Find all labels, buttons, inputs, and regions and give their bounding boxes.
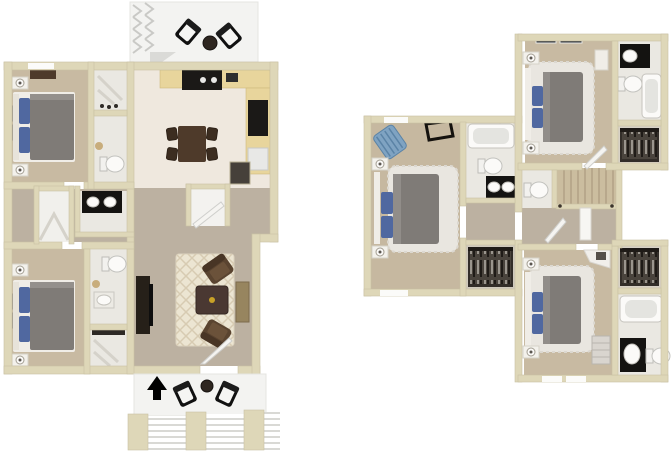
dining-chair [206,147,218,160]
floorplan-second-floor[interactable] [364,34,670,382]
dining-chair [166,127,178,140]
toilet [618,76,642,92]
door-panel [580,208,591,240]
pillow [532,86,543,106]
bed [13,280,75,352]
floorplan-image [0,0,672,454]
toilet [102,256,126,272]
basket [92,280,100,288]
window [380,290,408,296]
nightstand [12,164,28,176]
headboard [13,282,19,350]
nightstand [523,52,539,64]
small-appliance [226,73,238,82]
hall-bathroom [80,191,127,232]
toilet [478,158,502,174]
staircase [556,168,618,209]
headboard [374,172,380,244]
basket [95,142,103,150]
sink [97,295,111,305]
patio-top [130,2,258,62]
closet-3 [620,248,659,286]
nightstand [523,142,539,154]
laundry-closet [191,189,225,228]
master-hall-floor [466,203,515,240]
nightstand [523,258,539,270]
dining-chair [206,127,218,140]
desk-tray [596,252,606,260]
comforter [30,94,74,160]
nightstand [523,346,539,358]
pillow [381,216,393,238]
patio-table [203,36,217,50]
pillow [19,98,30,124]
sink [104,197,116,207]
master-closet [468,247,513,287]
nightstand [12,264,28,276]
tv [149,284,153,326]
window [566,376,586,382]
comforter [30,282,74,350]
dresser [30,70,56,79]
pillow [19,287,30,313]
pillow [19,316,30,342]
dresser [595,50,608,70]
front-steps [128,410,280,450]
utility-nook [230,162,250,184]
pillow [532,314,543,334]
tray [209,297,215,303]
sink [624,344,640,364]
pillow [19,127,30,153]
tv-console [136,276,150,334]
nightstand [12,77,28,89]
shelf [92,330,125,335]
sink [623,50,637,62]
nightstand [372,246,388,258]
window [384,117,408,123]
sink [488,182,500,192]
headboard [525,68,531,140]
hall-closet [39,191,69,242]
refrigerator [248,100,268,136]
sink [502,182,514,192]
console-table [236,282,249,322]
hall-floor [522,208,616,244]
pillow [381,192,393,214]
sink [87,197,99,207]
ottoman [196,286,228,314]
bed [13,92,75,162]
floorplan-first-floor[interactable] [4,2,280,450]
pillow [532,292,543,312]
patio-table [201,380,213,392]
window [28,63,54,69]
dining-table [178,126,206,162]
toilet [100,156,124,172]
closet-2 [620,128,659,162]
nightstand [12,354,28,366]
pillow [532,108,543,128]
dining-chair [166,147,178,160]
window [542,376,562,382]
nightstand [372,158,388,170]
headboard [525,272,531,346]
toilet [524,182,548,198]
dresser [592,336,610,364]
dishwasher [248,148,268,170]
headboard [13,94,19,160]
